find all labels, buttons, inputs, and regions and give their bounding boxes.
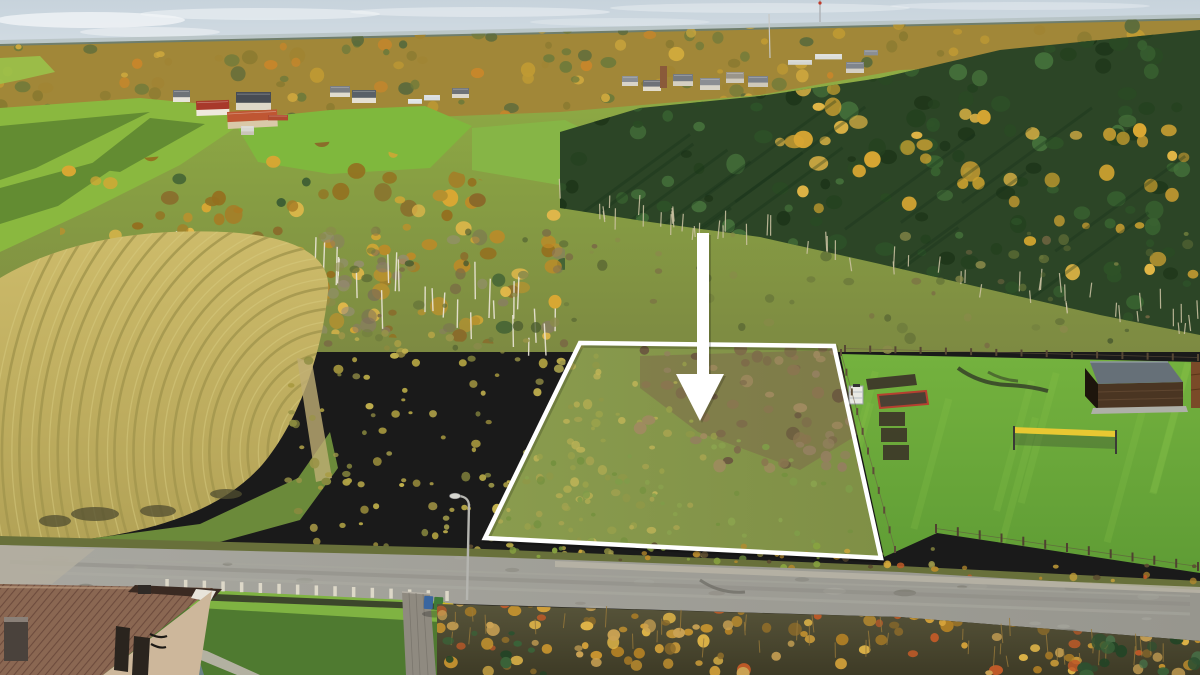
wooden-garage	[1085, 362, 1188, 414]
scene-canvas	[0, 0, 1200, 675]
roof-vent	[138, 585, 151, 594]
aerial-plot-photo	[0, 0, 1200, 675]
chimney	[4, 617, 28, 661]
plot-marker-arrow-shaft	[697, 233, 709, 376]
bin-blue	[424, 596, 434, 609]
side-structure	[1191, 362, 1200, 408]
lamp-head	[450, 493, 461, 499]
brick-chimney-tower	[660, 66, 667, 88]
house-window	[114, 626, 130, 672]
mast-beacon	[818, 1, 821, 4]
foreground-house	[0, 584, 222, 675]
house-window-2	[132, 636, 150, 675]
